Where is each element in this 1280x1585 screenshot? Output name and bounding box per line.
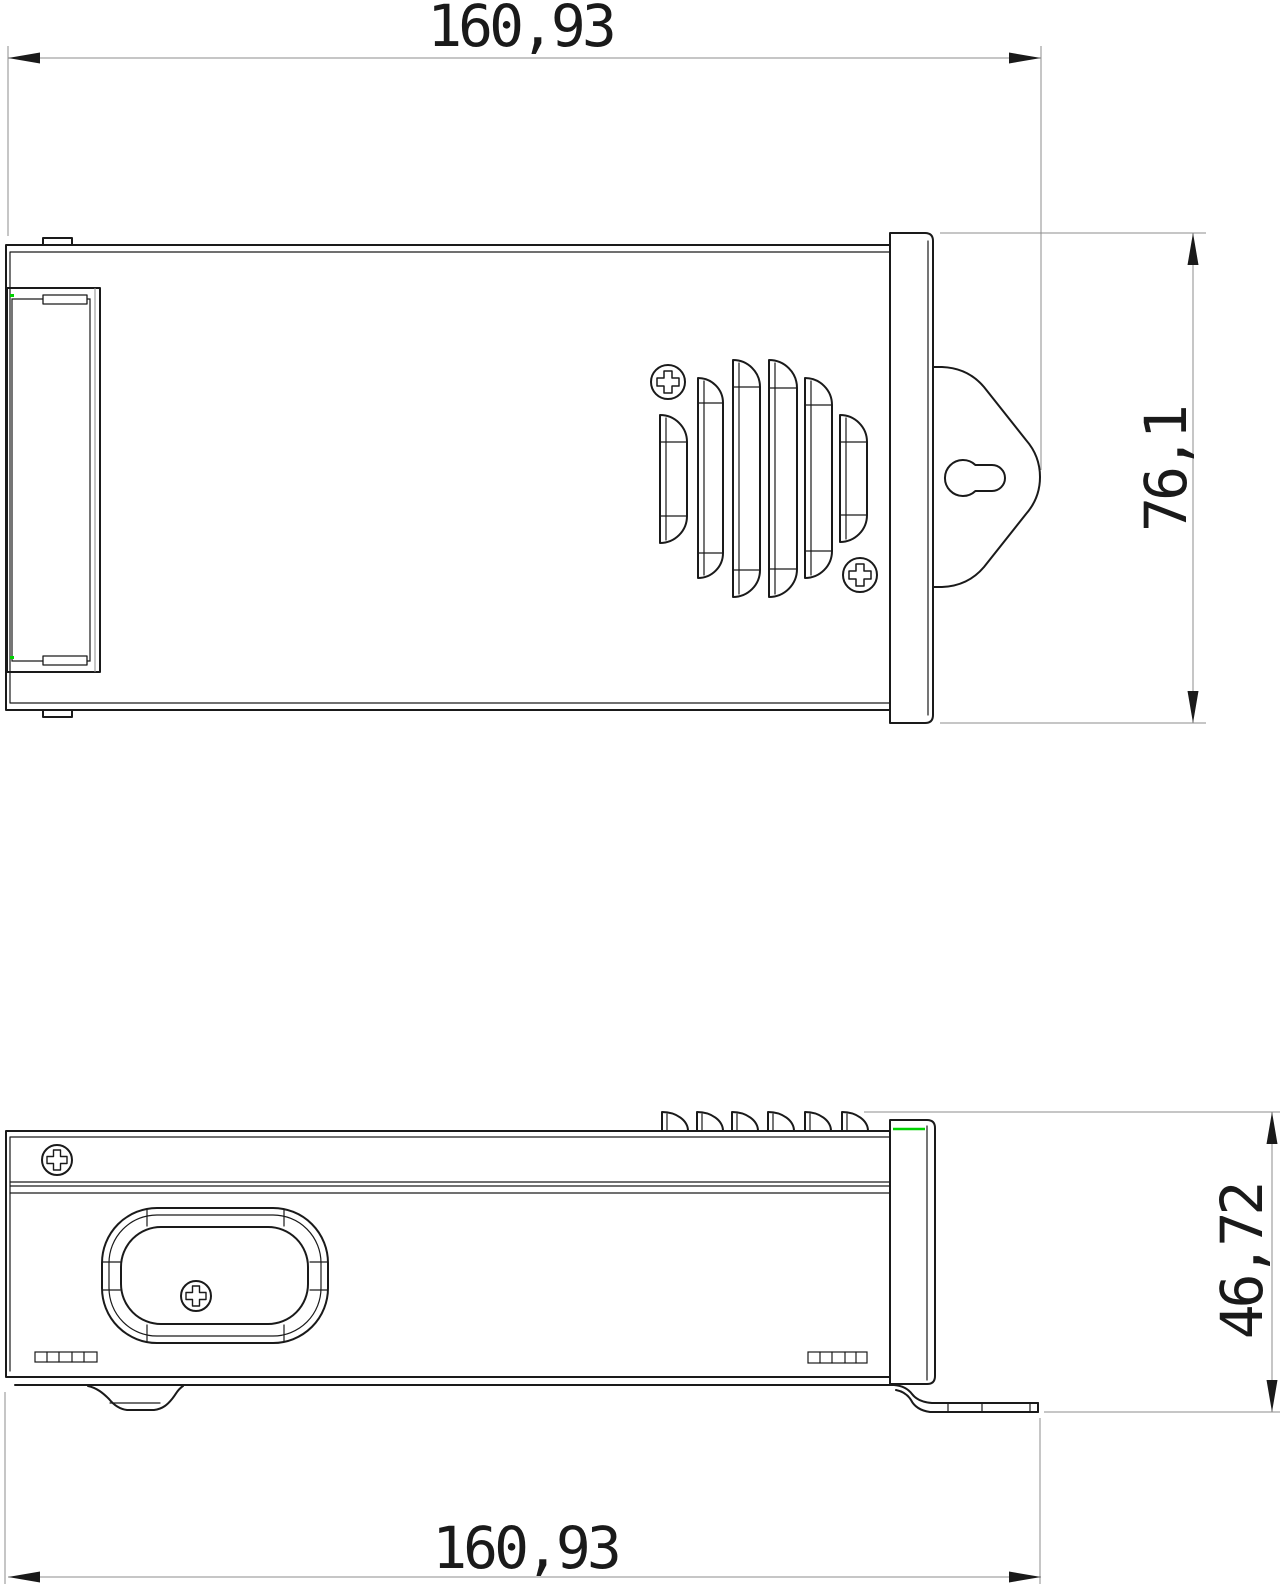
edge-tab-top — [43, 238, 72, 245]
bracket-upper-profile — [15, 1385, 1038, 1403]
arrowhead-left — [8, 1572, 40, 1583]
fin — [805, 1112, 831, 1131]
case-inner-line — [10, 1137, 890, 1371]
fin — [842, 1112, 868, 1131]
vent-strip-frame — [808, 1352, 867, 1363]
seam-lines — [10, 1182, 890, 1193]
handle-inner — [121, 1227, 308, 1324]
dim-top-width-label: 160,93 — [427, 0, 613, 60]
edge-tab-bottom — [43, 710, 72, 717]
side-view — [6, 1112, 1038, 1412]
louver — [769, 360, 797, 597]
handle-recess — [102, 1208, 328, 1343]
vent-strip-frame — [35, 1352, 97, 1362]
foot — [88, 1386, 183, 1410]
terminal-recess — [7, 288, 100, 672]
fin — [768, 1112, 794, 1131]
arrowhead-up — [1188, 233, 1199, 265]
vent-fins-side — [662, 1112, 868, 1131]
screw-bottom-right — [843, 558, 877, 592]
dim-top-width: 160,93 — [8, 0, 1041, 470]
vent-strip-left — [35, 1352, 97, 1362]
green-mark — [10, 656, 14, 659]
bracket-segments — [948, 1403, 1030, 1412]
vent-louvers-top — [660, 360, 867, 597]
arrowhead-down — [1188, 691, 1199, 723]
fin — [662, 1112, 688, 1131]
arrowhead-left — [8, 53, 40, 64]
vent-strip-cells — [47, 1352, 84, 1362]
screw-top-left — [651, 365, 685, 399]
dim-front-height-label: 76,1 — [1132, 408, 1200, 532]
fin — [732, 1112, 758, 1131]
louver — [805, 378, 832, 578]
arrowhead-right — [1009, 53, 1041, 64]
louver — [840, 415, 867, 542]
recess-tab-bottom — [43, 656, 87, 665]
arrowhead-down — [1267, 1380, 1278, 1412]
foot-outline — [88, 1386, 183, 1410]
technical-drawing-page: 160,93 — [0, 0, 1280, 1585]
fin — [697, 1112, 723, 1131]
dim-side-height-label: 46,72 — [1208, 1185, 1276, 1340]
dim-bottom-width: 160,93 — [5, 1392, 1041, 1584]
top-view — [6, 233, 1040, 723]
technical-drawing: 160,93 — [0, 0, 1280, 1585]
dim-bottom-width-label: 160,93 — [432, 1514, 618, 1582]
screw-side-left — [42, 1145, 72, 1175]
recess-tab-top — [43, 295, 87, 304]
handle-outer — [102, 1208, 328, 1343]
end-plate-side — [890, 1120, 935, 1384]
louver — [660, 415, 687, 543]
handle-ticks — [103, 1209, 327, 1342]
bracket-lower-profile — [896, 1390, 1038, 1412]
arrowhead-up — [1267, 1112, 1278, 1144]
green-mark — [10, 294, 14, 297]
arrowhead-right — [1009, 1572, 1041, 1583]
vent-strip-right — [808, 1352, 867, 1363]
louver — [733, 360, 760, 597]
vent-strip-cells — [820, 1352, 856, 1363]
keyhole-slot — [945, 460, 1005, 496]
recess-inner — [12, 299, 90, 661]
recess-outer — [7, 288, 100, 672]
end-plate — [890, 233, 933, 723]
louver — [698, 378, 723, 578]
mounting-bracket — [15, 1385, 1038, 1412]
